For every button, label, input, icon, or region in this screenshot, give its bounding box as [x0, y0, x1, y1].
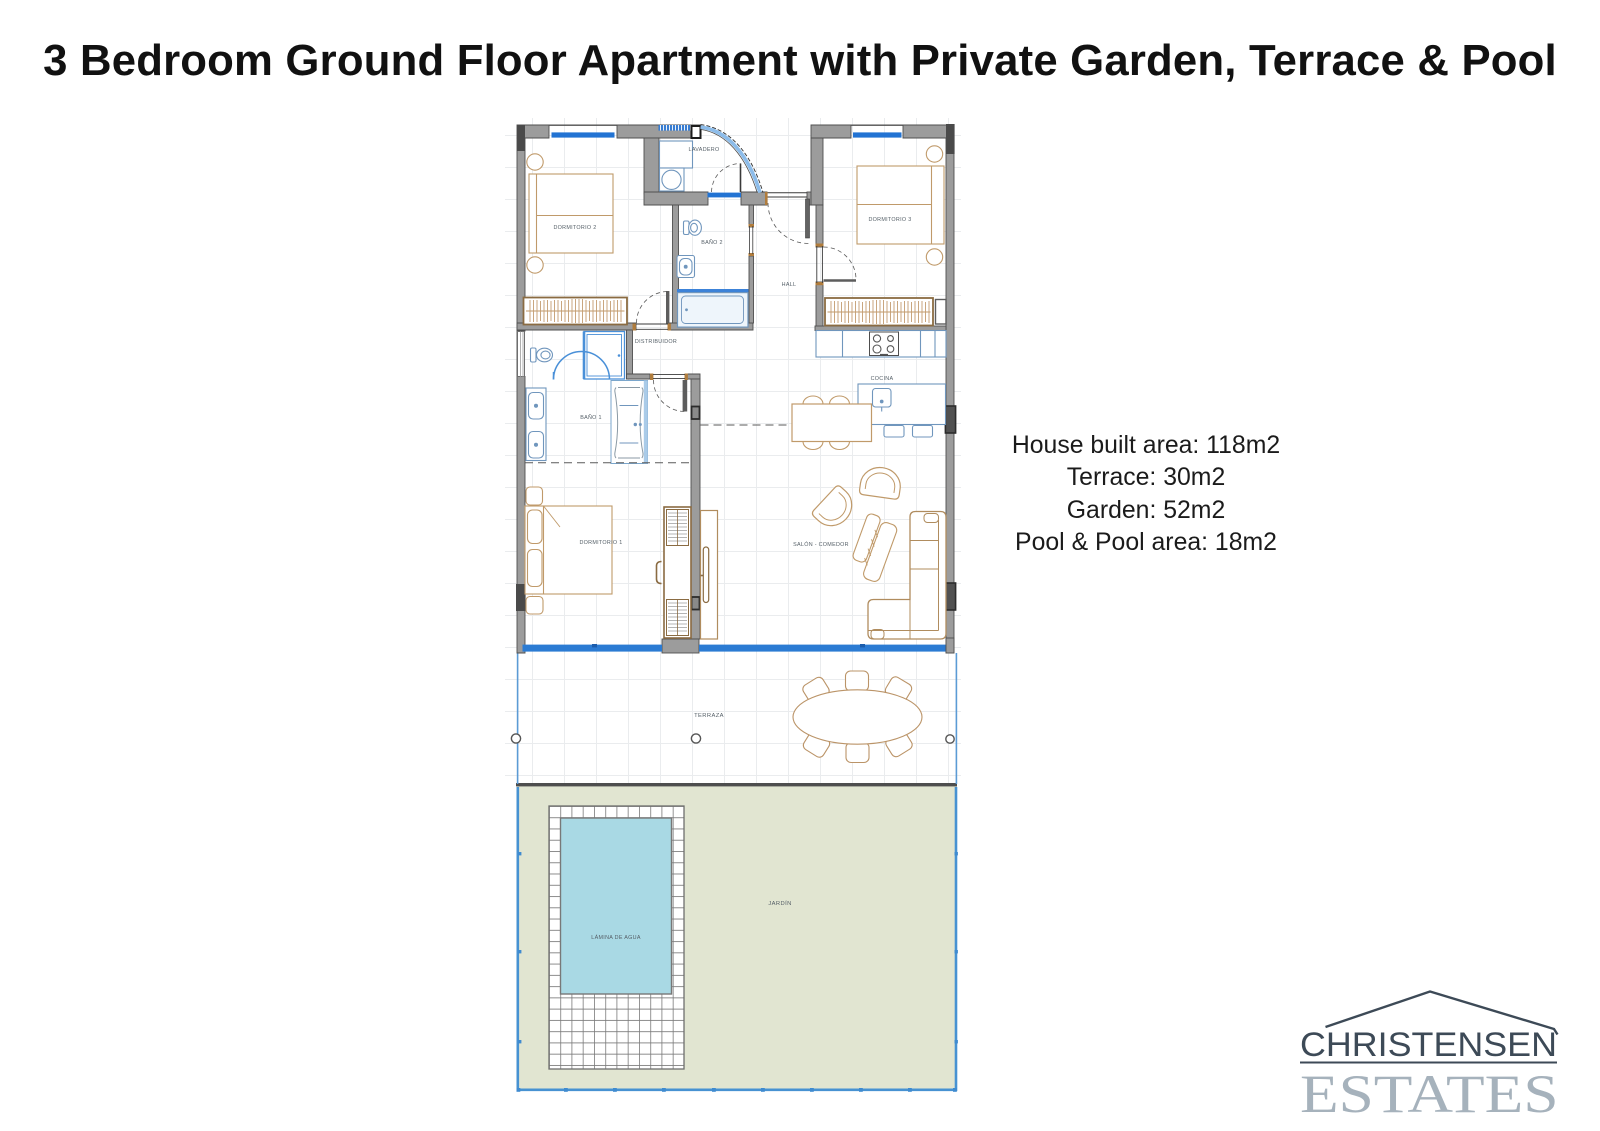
svg-text:JARDÍN: JARDÍN: [768, 900, 791, 907]
svg-text:ESTATES: ESTATES: [1300, 1064, 1559, 1120]
svg-text:LAVADERO: LAVADERO: [689, 147, 720, 153]
svg-text:DORMITORIO 3: DORMITORIO 3: [868, 217, 911, 223]
svg-text:TERRAZA: TERRAZA: [694, 713, 724, 719]
svg-text:COCINA: COCINA: [871, 376, 894, 382]
svg-text:BAÑO 1: BAÑO 1: [580, 414, 602, 421]
svg-text:HALL: HALL: [782, 282, 797, 288]
svg-text:BAÑO 2: BAÑO 2: [701, 239, 723, 246]
svg-text:SALÓN - COMEDOR: SALÓN - COMEDOR: [793, 541, 849, 548]
svg-text:CHRISTENSEN: CHRISTENSEN: [1300, 1026, 1557, 1064]
svg-text:DISTRIBUIDOR: DISTRIBUIDOR: [635, 339, 677, 345]
svg-text:DORMITORIO 1: DORMITORIO 1: [579, 540, 622, 546]
svg-text:LÁMINA DE AGUA: LÁMINA DE AGUA: [591, 934, 641, 941]
svg-text:DORMITORIO 2: DORMITORIO 2: [553, 225, 596, 231]
